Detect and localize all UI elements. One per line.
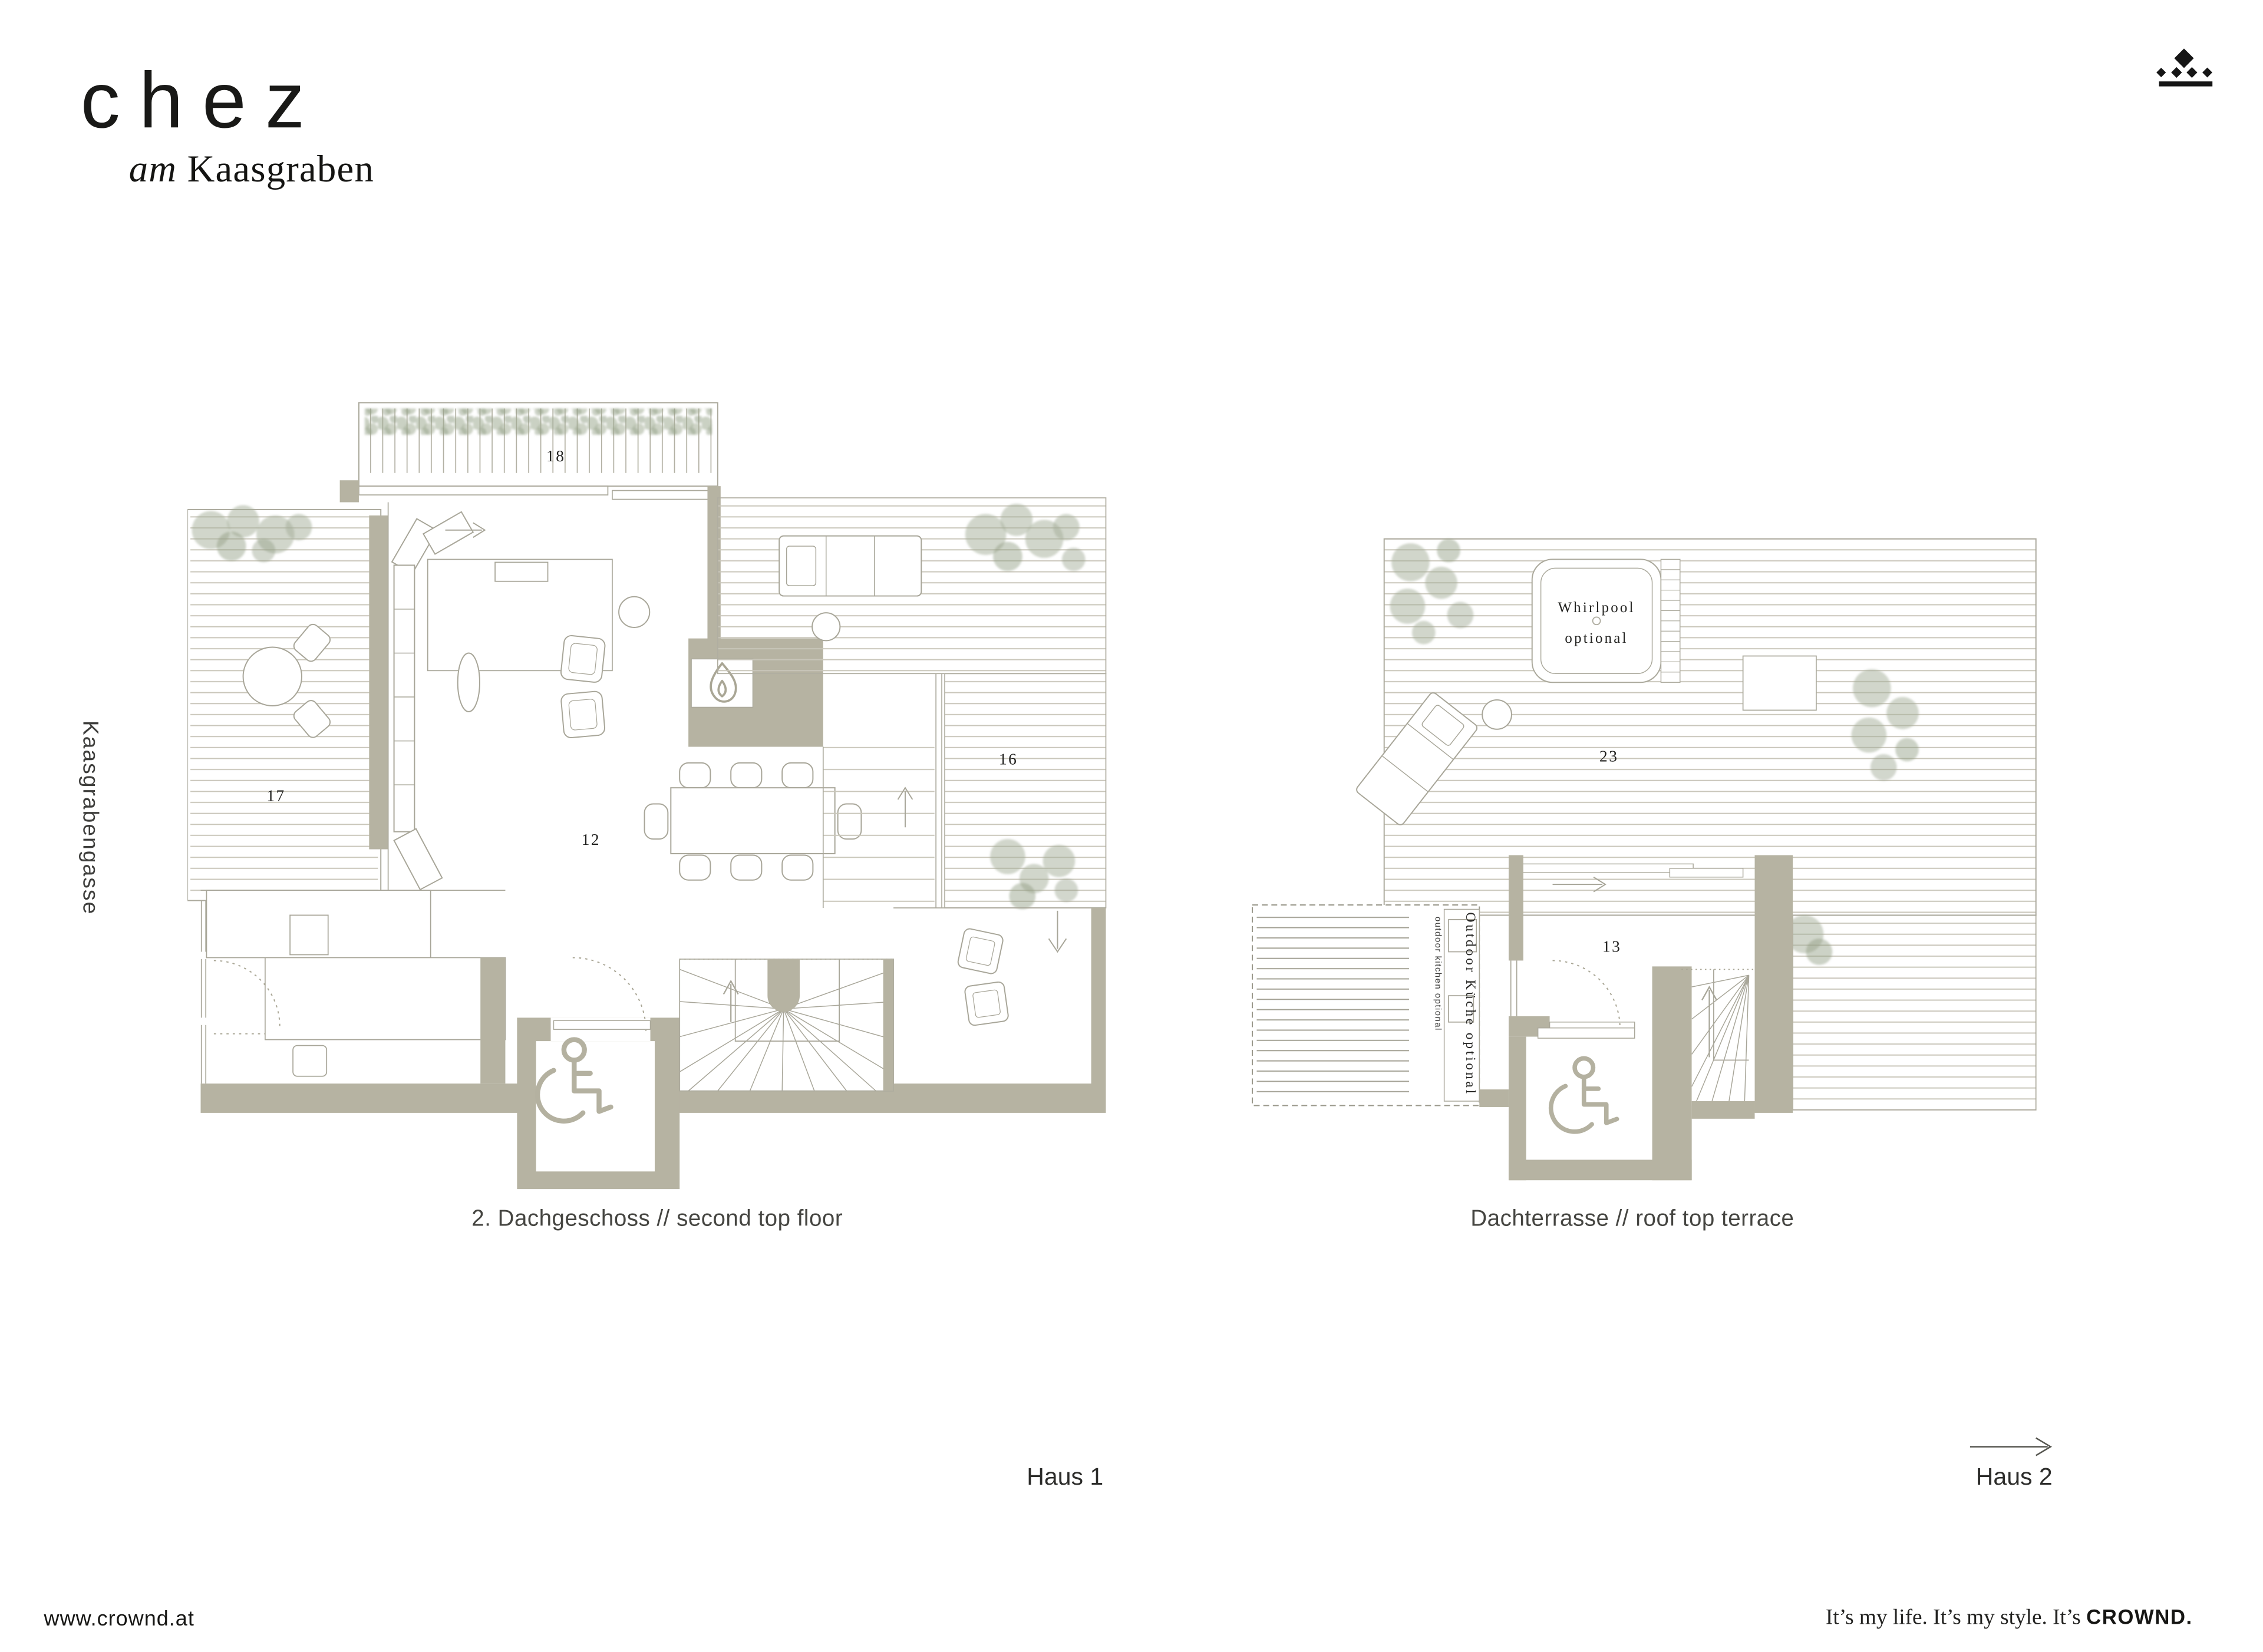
terrace-upper-right xyxy=(718,498,1106,673)
tagline-brand: CROWND. xyxy=(2086,1605,2193,1628)
whirlpool-label-1: Whirlpool xyxy=(1558,600,1635,616)
whirlpool-ladder xyxy=(1661,559,1680,682)
sliding-door-track xyxy=(1670,868,1743,877)
door-swing xyxy=(1553,960,1620,1027)
tagline: It’s my life. It’s my style. It’s CROWND… xyxy=(1826,1605,2193,1631)
side-table xyxy=(1482,700,1512,729)
stair-core xyxy=(767,959,800,1012)
room-number-18: 18 xyxy=(546,447,565,465)
room-number-13: 13 xyxy=(1602,938,1621,956)
whirlpool: Whirlpool optional xyxy=(1532,559,1661,682)
window xyxy=(1511,960,1517,1016)
outdoor-kitchen-label-en: outdoor kitchen optional xyxy=(1433,917,1443,1031)
sliding-door-track xyxy=(612,491,718,500)
street-label: Kaasgrabengasse xyxy=(78,721,103,915)
side-table xyxy=(812,613,840,640)
wall xyxy=(369,516,388,850)
sliding-door-track xyxy=(359,486,608,495)
floor-plan-haus1: 17 1 xyxy=(187,395,1110,1215)
plan2-caption: Dachterrasse // roof top terrace xyxy=(1470,1207,1794,1233)
railing xyxy=(936,673,942,908)
wall xyxy=(1091,908,1106,1086)
lounge-chairs xyxy=(957,928,1009,1026)
whirlpool-label-2: optional xyxy=(1565,630,1628,646)
elevator xyxy=(1509,966,1692,1180)
wall xyxy=(1509,855,1523,960)
armchairs xyxy=(560,635,606,738)
room-number-17: 17 xyxy=(266,787,285,805)
brand-logo: chez amKaasgraben xyxy=(81,61,374,191)
nook-door-arrow xyxy=(1049,911,1067,952)
outdoor-kitchen: Outdoor Küche optional outdoor kitchen o… xyxy=(1252,905,1479,1105)
bed xyxy=(265,957,506,1039)
stairs xyxy=(679,959,893,1091)
haus1-label: Haus 1 xyxy=(1027,1464,1103,1492)
room-number-16: 16 xyxy=(999,750,1018,768)
wall xyxy=(1755,855,1793,1112)
wall xyxy=(480,957,505,1083)
haus2-arrow-icon xyxy=(1968,1436,2059,1457)
logo-subtitle-rest: Kaasgraben xyxy=(187,148,374,190)
reading-nook xyxy=(893,908,1106,1086)
double-lounger xyxy=(779,536,921,596)
crown-diamonds-icon xyxy=(2153,38,2221,94)
floor-plan-haus2: Whirlpool optional 23 xyxy=(1245,527,2044,1208)
pergola-balcony xyxy=(340,402,718,502)
website-label: www.crownd.at xyxy=(44,1608,194,1631)
living-room: 12 xyxy=(388,502,650,890)
skylight xyxy=(1743,656,1816,710)
sliding-door-track xyxy=(1518,864,1693,873)
hedge-row xyxy=(365,408,712,435)
room-number-12: 12 xyxy=(582,831,601,848)
side-table xyxy=(458,653,480,711)
logo-subtitle: amKaasgraben xyxy=(81,148,374,192)
brochure-page: chez amKaasgraben Kaasgrabengasse xyxy=(0,0,2263,1652)
room-number-23: 23 xyxy=(1599,747,1618,765)
dining-table xyxy=(671,788,834,854)
logo-wordmark: chez xyxy=(81,61,374,140)
terrace-left: 17 xyxy=(187,505,388,900)
plan1-caption: 2. Dachgeschoss // second top floor xyxy=(471,1207,843,1233)
sideboard xyxy=(495,562,547,581)
logo-subtitle-am: am xyxy=(129,148,177,190)
haus2-label: Haus 2 xyxy=(1976,1464,2053,1492)
tagline-prefix: It’s my life. It’s my style. It’s xyxy=(1826,1606,2086,1630)
window xyxy=(202,901,206,1084)
pouf xyxy=(619,597,649,627)
outdoor-kitchen-label-de: Outdoor Küche optional xyxy=(1463,912,1478,1096)
elevator xyxy=(517,957,679,1189)
terrace-right: 16 xyxy=(823,673,1106,909)
bedroom xyxy=(199,890,505,1083)
